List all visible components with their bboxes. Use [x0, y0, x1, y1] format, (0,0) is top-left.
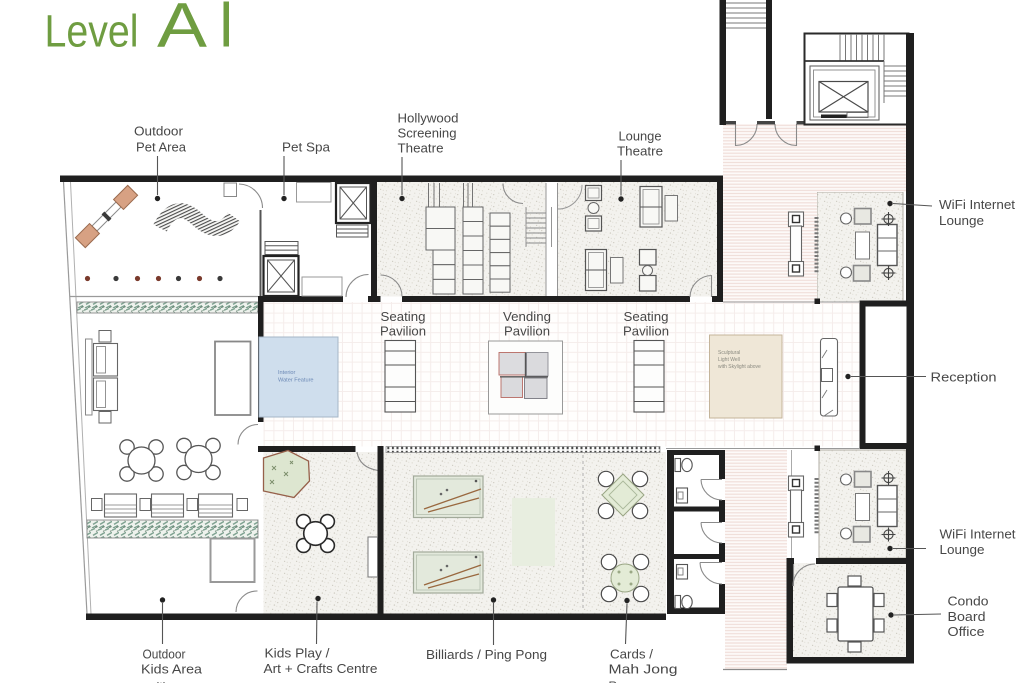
svg-text:Lounge: Lounge: [940, 542, 985, 557]
svg-text:Billiards / Ping Pong: Billiards / Ping Pong: [426, 647, 547, 662]
svg-text:Pavilion: Pavilion: [623, 324, 669, 339]
svg-text:A: A: [157, 0, 207, 61]
svg-text:Outdoor: Outdoor: [143, 647, 187, 662]
svg-text:Screening: Screening: [398, 126, 457, 141]
svg-text:Vending: Vending: [503, 309, 551, 324]
svg-text:Outdoor: Outdoor: [134, 124, 184, 139]
svg-text:with...: with...: [147, 680, 179, 683]
svg-text:WiFi Internet: WiFi Internet: [940, 527, 1016, 542]
svg-text:Condo: Condo: [948, 594, 989, 609]
svg-text:Kids Play /: Kids Play /: [265, 646, 330, 661]
svg-text:Hollywood: Hollywood: [398, 111, 459, 126]
svg-text:Reception: Reception: [931, 370, 997, 385]
svg-text:Sculptural: Sculptural: [718, 350, 740, 356]
svg-text:Kids Area: Kids Area: [141, 662, 203, 677]
svg-text:Pet Area: Pet Area: [136, 140, 187, 155]
svg-text:Cards /: Cards /: [610, 647, 653, 662]
svg-text:Board: Board: [948, 609, 986, 624]
svg-text:Room: Room: [609, 679, 641, 683]
svg-text:Pavilion: Pavilion: [504, 324, 550, 339]
svg-text:Theatre: Theatre: [617, 144, 663, 159]
svg-text:Art + Crafts Centre: Art + Crafts Centre: [264, 661, 378, 676]
svg-text:WiFi Internet: WiFi Internet: [939, 197, 1015, 212]
svg-text:Pavilion: Pavilion: [380, 324, 426, 339]
svg-text:Light Well: Light Well: [718, 357, 740, 363]
svg-text:Water Feature: Water Feature: [278, 378, 314, 384]
svg-text:Seating: Seating: [381, 309, 426, 324]
svg-text:Level: Level: [45, 6, 139, 57]
svg-text:Mah Jong: Mah Jong: [609, 662, 678, 677]
svg-text:with Skylight above: with Skylight above: [718, 364, 761, 370]
svg-text:Lounge: Lounge: [619, 129, 662, 144]
svg-text:Pet Spa: Pet Spa: [282, 140, 331, 155]
svg-text:Theatre: Theatre: [398, 141, 444, 156]
svg-text:Interior: Interior: [278, 370, 296, 376]
svg-text:Office: Office: [948, 624, 985, 639]
svg-text:Seating: Seating: [624, 309, 669, 324]
svg-text:Lounge: Lounge: [939, 213, 984, 228]
